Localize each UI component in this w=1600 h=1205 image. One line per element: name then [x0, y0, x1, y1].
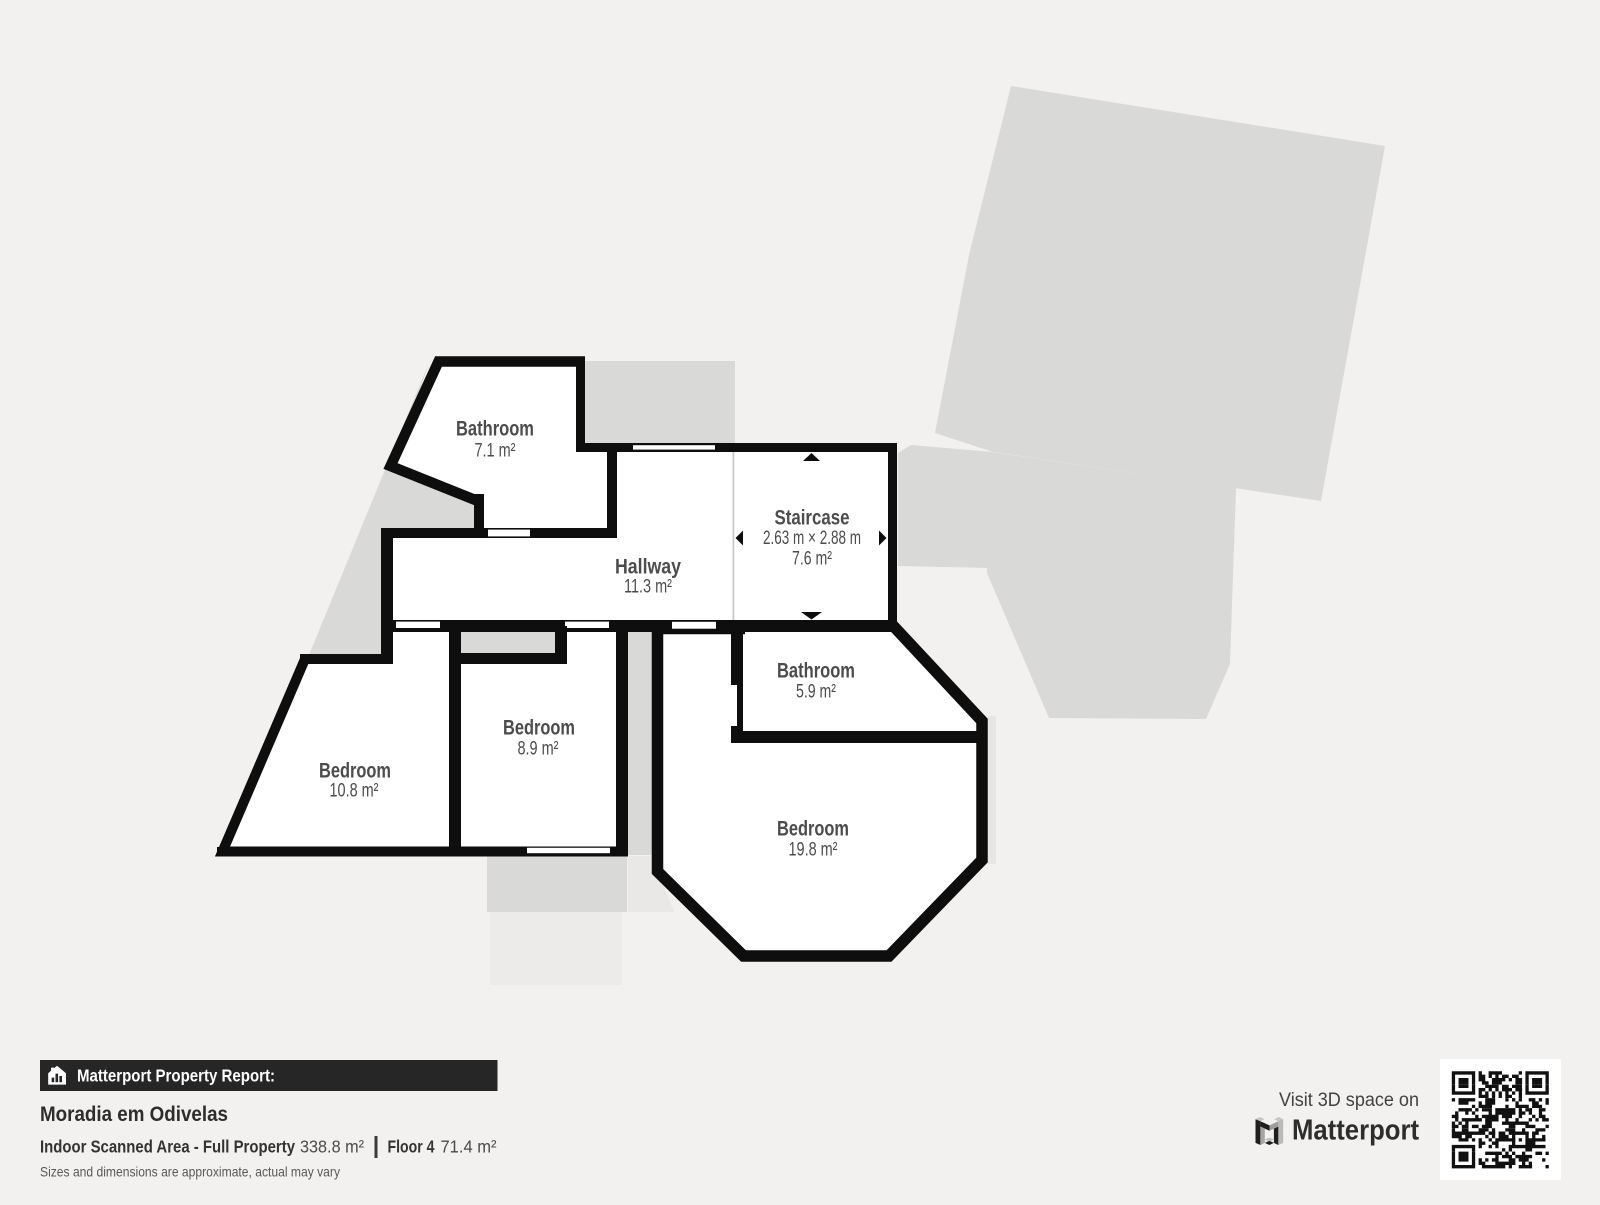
svg-text:11.3 m²: 11.3 m² [624, 577, 672, 598]
svg-text:7.1 m²: 7.1 m² [475, 441, 516, 462]
svg-text:Sizes and dimensions are appro: Sizes and dimensions are approximate, ac… [40, 1164, 340, 1180]
svg-text:Matterport: Matterport [1292, 1115, 1419, 1147]
svg-text:Bedroom: Bedroom [777, 817, 849, 841]
svg-text:Matterport Property Report:: Matterport Property Report: [77, 1066, 275, 1086]
svg-text:Bedroom: Bedroom [319, 759, 391, 783]
svg-text:Hallway: Hallway [615, 555, 681, 579]
svg-text:Indoor Scanned Area - Full Pro: Indoor Scanned Area - Full Property [40, 1137, 295, 1157]
svg-text:71.4 m²: 71.4 m² [441, 1137, 497, 1157]
svg-text:Bedroom: Bedroom [503, 716, 575, 740]
svg-text:7.6 m²: 7.6 m² [792, 549, 832, 570]
svg-text:338.8 m²: 338.8 m² [300, 1137, 364, 1157]
svg-text:Bathroom: Bathroom [456, 417, 534, 441]
svg-text:Bathroom: Bathroom [777, 659, 855, 683]
svg-text:Staircase: Staircase [775, 506, 850, 530]
svg-text:19.8 m²: 19.8 m² [789, 840, 838, 861]
svg-text:2.63 m × 2.88 m: 2.63 m × 2.88 m [763, 528, 861, 549]
svg-text:10.8 m²: 10.8 m² [330, 781, 379, 802]
svg-text:8.9 m²: 8.9 m² [518, 739, 559, 760]
svg-text:5.9 m²: 5.9 m² [796, 682, 836, 703]
svg-text:Visit 3D space on: Visit 3D space on [1279, 1089, 1419, 1111]
svg-text:Floor 4: Floor 4 [388, 1137, 435, 1157]
svg-text:Moradia em Odivelas: Moradia em Odivelas [40, 1102, 228, 1126]
